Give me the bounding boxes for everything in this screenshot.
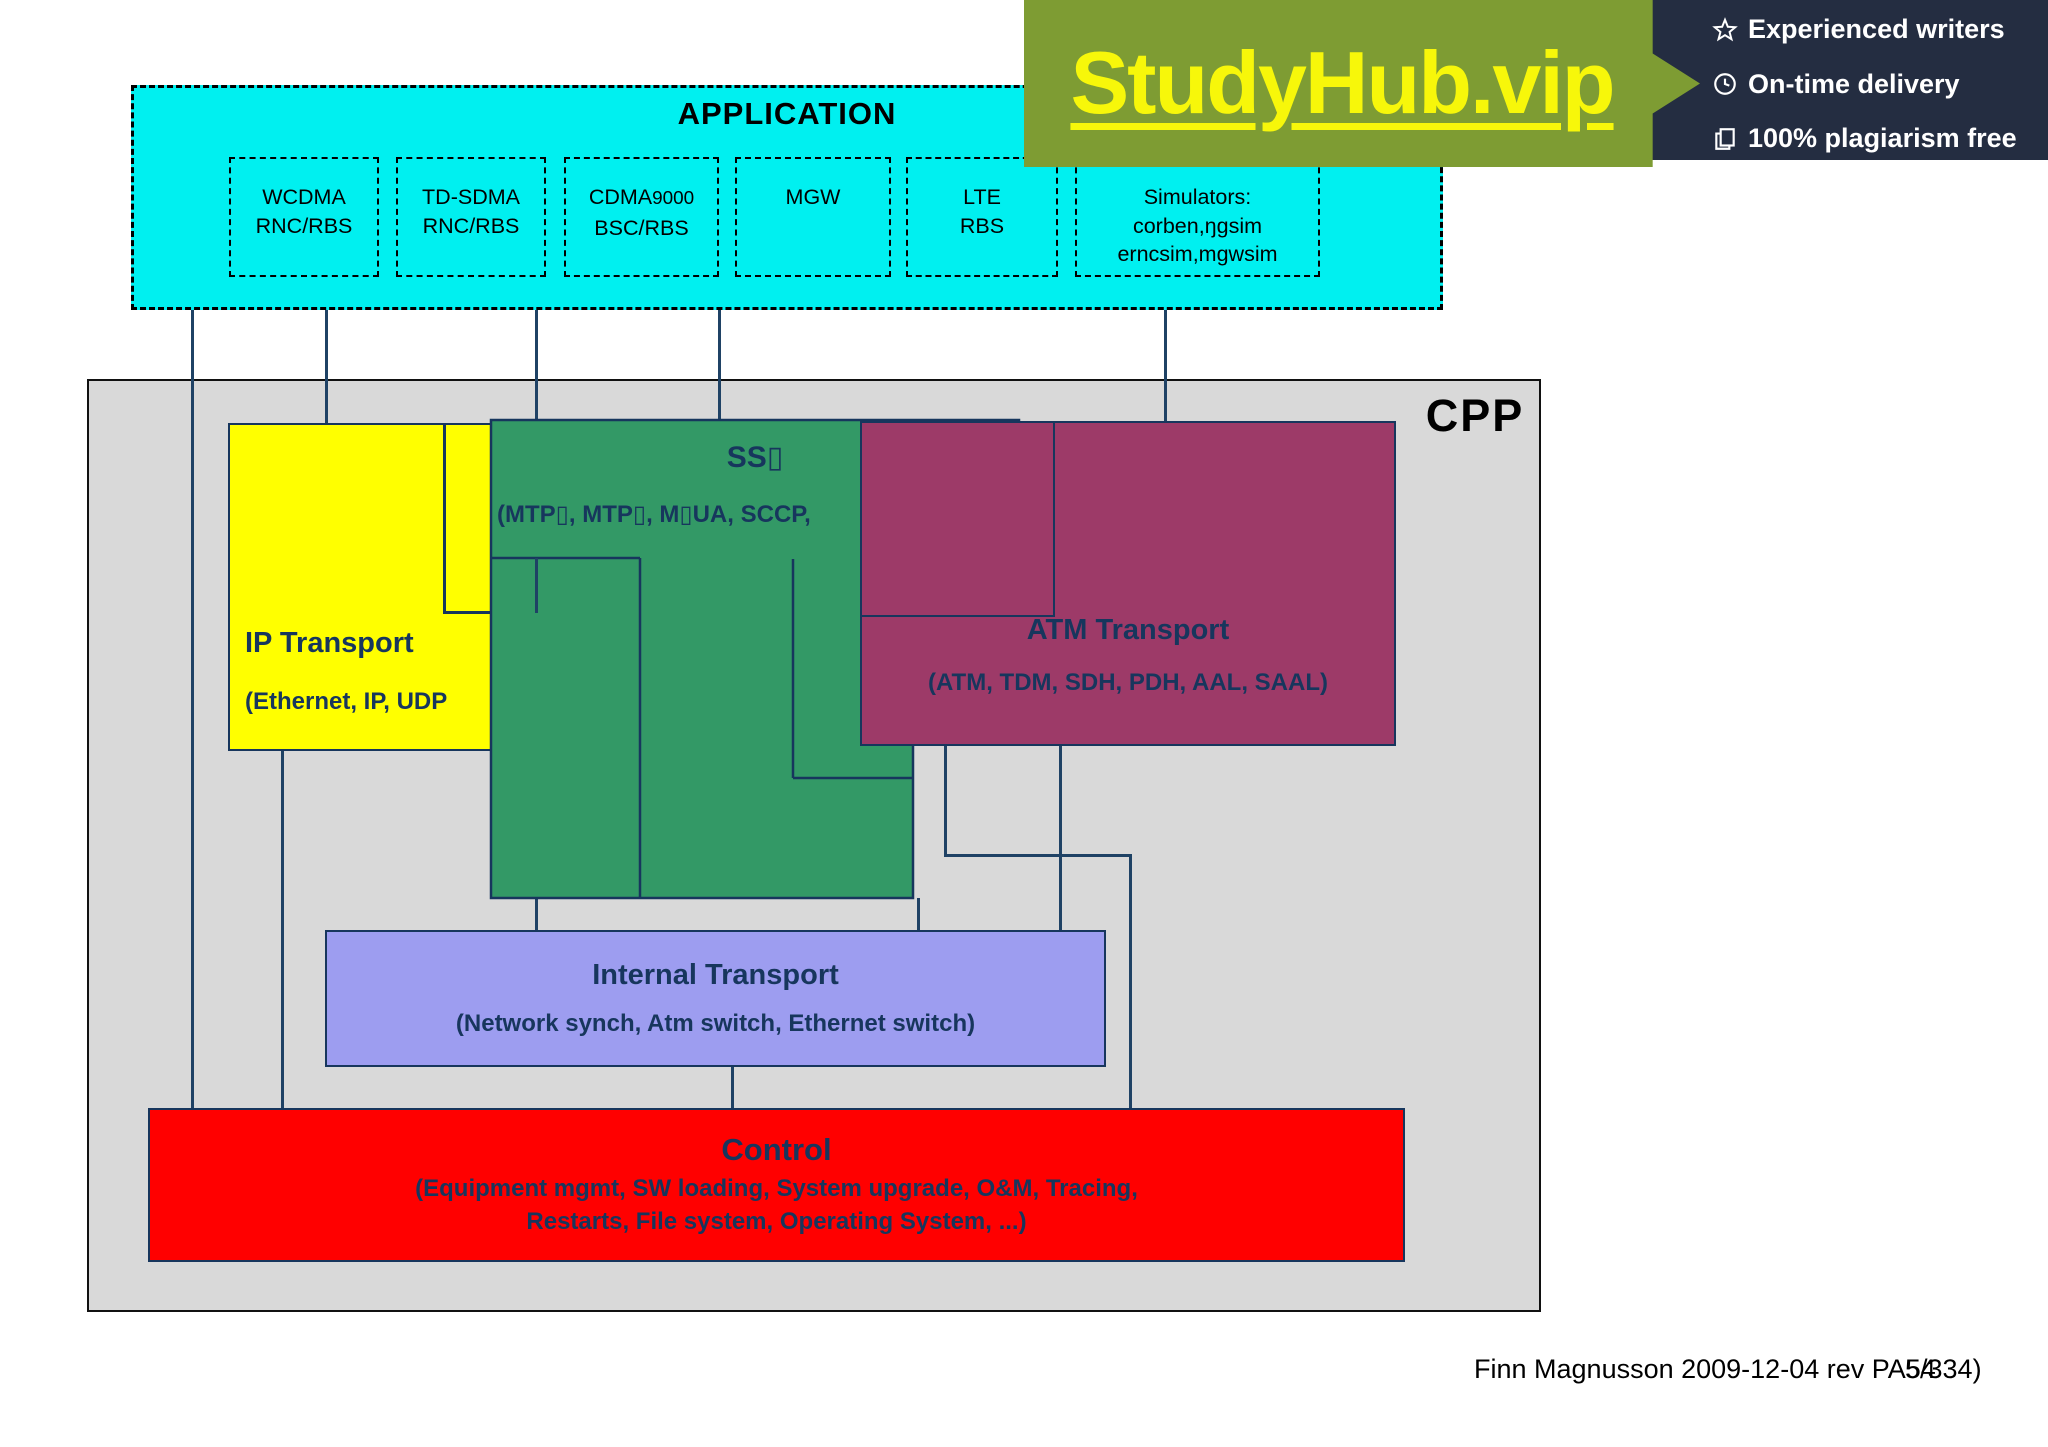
banner-feature-label: 100% plagiarism free: [1748, 123, 2017, 154]
clock-icon: [1712, 71, 1738, 97]
app-box-label: CDMA9000: [566, 183, 717, 214]
app-box-label: BSC/RBS: [566, 214, 717, 243]
banner-feature-list: Experienced writers On-time delivery 100…: [1712, 14, 2042, 154]
app-box-label: TD-SDMA: [398, 183, 544, 212]
ss7-subtitle: (MTP▯, MTP▯, M▯UA, SCCP,: [497, 500, 811, 529]
app-box-simulators: Simulators: corben,ŋgsim erncsim,mgwsim: [1075, 157, 1320, 277]
app-box-label: RNC/RBS: [398, 212, 544, 241]
atm-transport-subtitle: (ATM, TDM, SDH, PDH, AAL, SAAL): [860, 669, 1396, 697]
banner-feature: On-time delivery: [1712, 69, 2042, 100]
control-box: Control (Equipment mgmt, SW loading, Sys…: [148, 1108, 1405, 1262]
footer-page-number: 5/334): [1905, 1354, 1982, 1385]
connector-line: [535, 558, 538, 613]
control-subtitle-line1: (Equipment mgmt, SW loading, System upgr…: [415, 1172, 1138, 1205]
app-box-label: MGW: [737, 183, 889, 212]
app-box-lte: LTE RBS: [906, 157, 1058, 277]
banner-feature-label: Experienced writers: [1748, 14, 2005, 45]
internal-transport-box: Internal Transport (Network synch, Atm s…: [325, 930, 1106, 1067]
app-box-cdma2000: CDMA9000 BSC/RBS: [564, 157, 719, 277]
banner-feature: 100% plagiarism free: [1712, 123, 2042, 154]
app-box-label: Simulators:: [1077, 183, 1318, 212]
app-box-label: corben,ŋgsim: [1077, 212, 1318, 241]
app-box-label: RBS: [908, 212, 1056, 241]
atm-transport-text: ATM Transport (ATM, TDM, SDH, PDH, AAL, …: [860, 614, 1396, 697]
app-box-label-prefix: CDMA: [589, 185, 652, 209]
atm-transport-title: ATM Transport: [860, 614, 1396, 647]
copy-icon: [1712, 126, 1738, 152]
slide-page: CPP IP Transport (Ethernet, IP, UDP SS▯ …: [0, 0, 2048, 1447]
control-subtitle-line2: Restarts, File system, Operating System,…: [526, 1205, 1026, 1238]
internal-transport-subtitle: (Network synch, Atm switch, Ethernet swi…: [456, 1010, 975, 1038]
star-icon: [1712, 17, 1738, 43]
app-box-mgw: MGW: [735, 157, 891, 277]
app-box-label: LTE: [908, 183, 1056, 212]
banner-feature-label: On-time delivery: [1748, 69, 1960, 100]
banner-site-link[interactable]: StudyHub.vip: [1034, 8, 1650, 158]
app-box-label: WCDMA: [231, 183, 377, 212]
app-box-label: erncsim,mgwsim: [1077, 240, 1318, 269]
atm-transport-upper-box: [860, 421, 1055, 617]
app-box-label: RNC/RBS: [231, 212, 377, 241]
internal-transport-title: Internal Transport: [592, 959, 839, 992]
app-box-label-suffix: 9000: [652, 188, 694, 209]
app-box-wcdma: WCDMA RNC/RBS: [229, 157, 379, 277]
control-title: Control: [721, 1132, 831, 1168]
footer-author: Finn Magnusson 2009-12-04 rev PA54: [1474, 1354, 1936, 1385]
app-box-tdsdma: TD-SDMA RNC/RBS: [396, 157, 546, 277]
banner-feature: Experienced writers: [1712, 14, 2042, 45]
